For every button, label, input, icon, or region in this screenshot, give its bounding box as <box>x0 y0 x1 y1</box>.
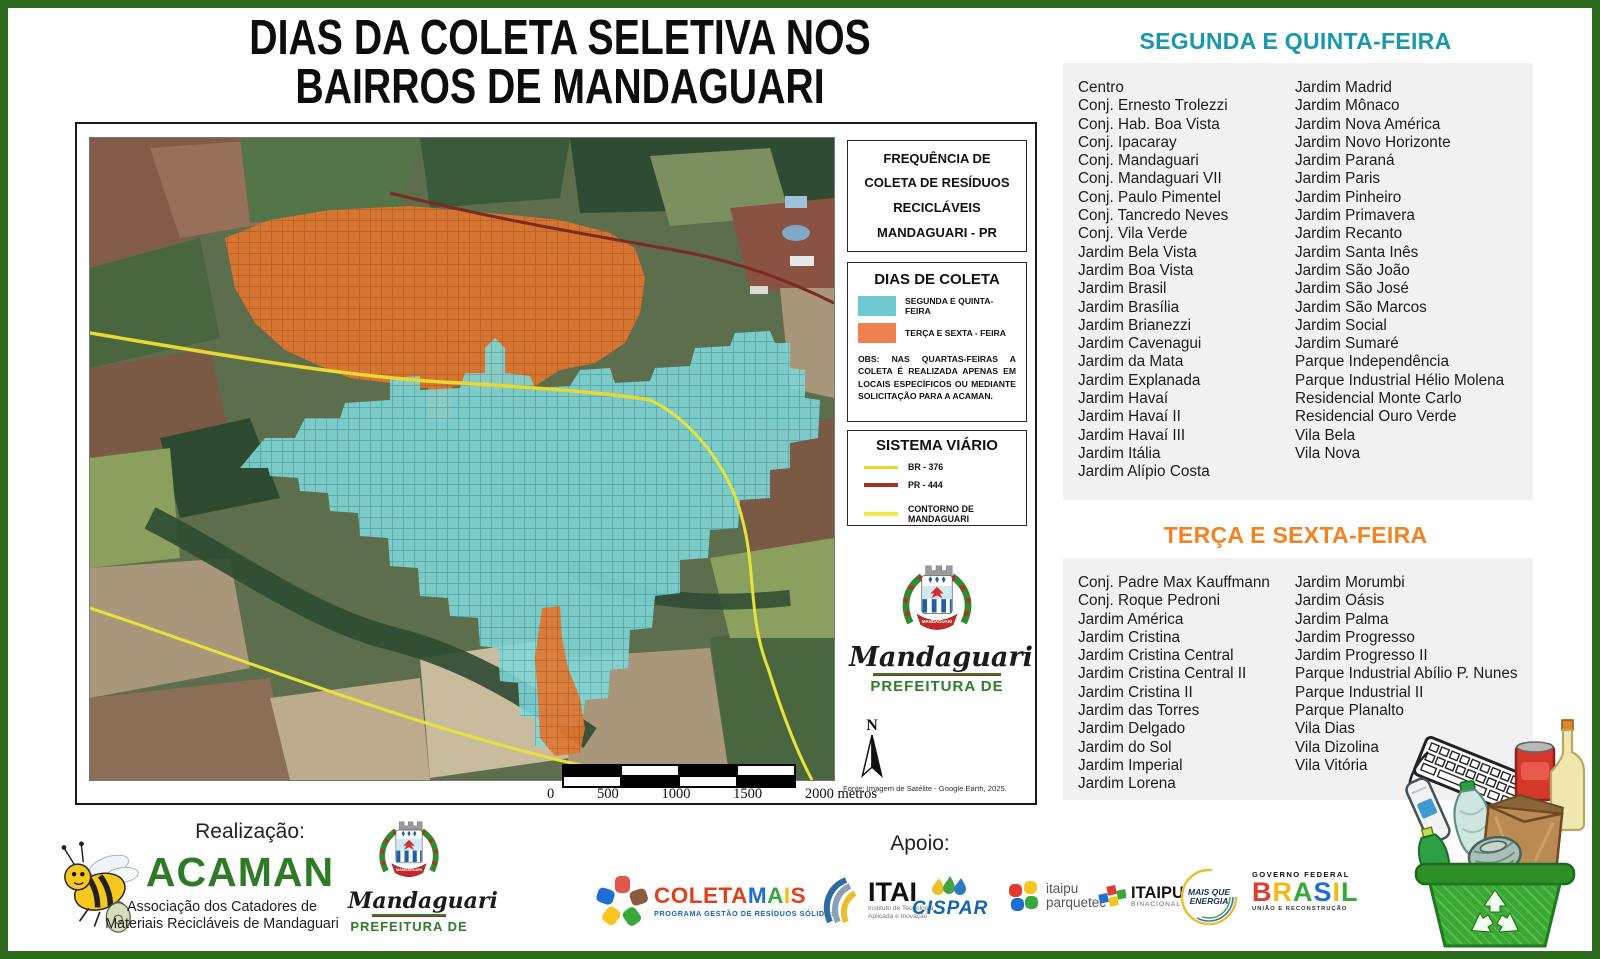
list-item: Conj. Mandaguari VII <box>1078 170 1228 188</box>
letter: A <box>1293 877 1314 907</box>
energia-wordmark: MAIS QUE ENERGIA <box>1178 866 1240 928</box>
mandaguari-crest-icon <box>368 820 450 886</box>
list-item: Conj. Padre Max Kauffmann <box>1078 574 1270 592</box>
letter: I <box>1333 877 1342 907</box>
mandaguari-city-logo: Mandaguari PREFEITURA DE <box>849 564 1025 695</box>
monday-list-title: SEGUNDA E QUINTA-FEIRA <box>1058 28 1533 55</box>
letter: A <box>731 883 748 908</box>
cispar-logo: CISPAR <box>912 876 988 920</box>
pr444-line-swatch <box>864 483 898 487</box>
legend-label: TERÇA E SEXTA - FEIRA <box>905 328 1006 338</box>
letter: T <box>719 883 732 908</box>
list-item: Vila Bela <box>1295 427 1504 445</box>
list-item: Jardim Alípio Costa <box>1078 463 1228 481</box>
list-item: Jardim Progresso II <box>1295 647 1518 665</box>
acaman-desc-line2: Materiais Recicláveis de Mandaguari <box>92 916 352 933</box>
list-item: Jardim Brasília <box>1078 299 1228 317</box>
north-letter: N <box>866 717 878 734</box>
cispar-drops-icon <box>927 876 973 898</box>
list-item: Jardim Havaí <box>1078 390 1228 408</box>
list-item: Jardim Havaí II <box>1078 408 1228 426</box>
list-item: Jardim Delgado <box>1078 720 1270 738</box>
list-item: Jardim São José <box>1295 280 1504 298</box>
list-item: Jardim Boa Vista <box>1078 262 1228 280</box>
letter: B <box>1252 877 1273 907</box>
list-item: 0 <box>547 786 554 803</box>
list-item: Parque Industrial Hélio Molena <box>1295 372 1504 390</box>
list-item: Jardim Primavera <box>1295 207 1504 225</box>
list-item: Jardim Lorena <box>1078 775 1270 793</box>
list-item: Jardim Havaí III <box>1078 427 1228 445</box>
energia-line2: ENERGIA <box>1190 897 1229 907</box>
map-scale-bar <box>562 764 796 788</box>
tuesday-list-col1: Conj. Padre Max KauffmannConj. Roque Ped… <box>1078 574 1270 794</box>
list-item: Jardim Novo Horizonte <box>1295 134 1504 152</box>
page-title: DIAS DA COLETA SELETIVA NOS BAIRROS DE M… <box>80 14 1040 112</box>
road-legend-item: BR - 376 <box>864 462 1016 472</box>
list-item: Conj. Vila Verde <box>1078 225 1228 243</box>
list-item: Jardim Cristina Central II <box>1078 665 1270 683</box>
list-item: Conj. Ipacaray <box>1078 134 1228 152</box>
mais-que-energia-logo: MAIS QUE ENERGIA <box>1178 866 1240 928</box>
itaipu-parquetec-logo: itaipu parquetec <box>1008 880 1106 912</box>
acaman-description: Associação dos Catadores de Materiais Re… <box>92 899 352 933</box>
list-item: Jardim Brasil <box>1078 280 1228 298</box>
list-item: Conj. Paulo Pimentel <box>1078 189 1228 207</box>
list-item: Jardim Cristina II <box>1078 684 1270 702</box>
itaipu-subtitle: BINACIONAL <box>1131 901 1184 908</box>
list-item: Jardim Progresso <box>1295 629 1518 647</box>
letter: L <box>1341 877 1359 907</box>
list-item: Jardim Santa Inês <box>1295 244 1504 262</box>
list-item: Jardim São João <box>1295 262 1504 280</box>
list-item: Jardim Paris <box>1295 170 1504 188</box>
list-item: Jardim Mônaco <box>1295 97 1504 115</box>
parquetec-icon <box>1008 880 1040 912</box>
map-figure: 0500100015002000 metros FREQUÊNCIA DE CO… <box>75 122 1037 805</box>
legend-label: SEGUNDA E QUINTA-FEIRA <box>905 296 1016 316</box>
cispar-wordmark: CISPAR <box>912 898 988 920</box>
city-logo-name: Mandaguari <box>849 645 1025 671</box>
road-label: BR - 376 <box>908 462 943 472</box>
letter: I <box>784 883 791 908</box>
list-item: Jardim das Torres <box>1078 702 1270 720</box>
list-item: Jardim Oásis <box>1295 592 1518 610</box>
itaipu-binacional-logo: ITAIPU BINACIONAL <box>1098 884 1184 910</box>
title-line-1: DIAS DA COLETA SELETIVA NOS <box>176 14 944 63</box>
list-item: Jardim Imperial <box>1078 757 1270 775</box>
list-item: Jardim Explanada <box>1078 372 1228 390</box>
list-item: Centro <box>1078 79 1228 97</box>
itaipu-wordmark: ITAIPU <box>1131 886 1184 901</box>
list-item: 500 <box>597 786 619 803</box>
coletamais-subtitle: PROGRAMA GESTÃO DE RESÍDUOS SÓLIDOS <box>654 909 836 918</box>
list-item: Jardim Morumbi <box>1295 574 1518 592</box>
list-item: Jardim Brianezzi <box>1078 317 1228 335</box>
acaman-logo-name: ACAMAN <box>135 849 345 896</box>
legend-item-monday: SEGUNDA E QUINTA-FEIRA <box>858 296 1016 316</box>
list-item: Jardim Palma <box>1295 611 1518 629</box>
recycle-bin-illustration <box>1398 692 1593 955</box>
north-arrow-icon: N <box>855 716 889 780</box>
list-item: Parque Industrial Abílio P. Nunes <box>1295 665 1518 683</box>
legend-item-tuesday: TERÇA E SEXTA - FEIRA <box>858 323 1016 343</box>
city-logo-name: Mandaguari <box>348 891 470 912</box>
monday-list-box: CentroConj. Ernesto TrolezziConj. Hab. B… <box>1063 63 1533 500</box>
legend-title: DIAS DE COLETA <box>858 271 1016 288</box>
letter: S <box>1314 877 1333 907</box>
frequency-line: RECICLÁVEIS <box>848 196 1026 221</box>
map-scale-labels: 0500100015002000 metros <box>547 786 877 803</box>
city-logo-divider <box>372 914 446 917</box>
coletamais-wordmark: COLETAMAIS <box>654 885 836 907</box>
letter: O <box>671 883 689 908</box>
letter: L <box>689 883 703 908</box>
br376-line-swatch <box>864 466 898 469</box>
brasil-wordmark: BRASIL <box>1252 879 1359 905</box>
road-legend-box: SISTEMA VIÁRIO BR - 376 PR - 444 CONTORN… <box>847 430 1027 526</box>
road-legend-item: CONTORNO DE MANDAGUARI <box>864 504 1016 524</box>
list-item: Residencial Monte Carlo <box>1295 390 1504 408</box>
list-item: Residencial Ouro Verde <box>1295 408 1504 426</box>
contorno-line-swatch <box>864 512 898 516</box>
poster: MANDAGUARI DIAS DA COLETA SELETIVA NOS B… <box>0 0 1600 959</box>
coletamais-hands-icon <box>596 874 648 928</box>
list-item: Parque Independência <box>1295 353 1504 371</box>
list-item: Jardim Bela Vista <box>1078 244 1228 262</box>
list-item: Vila Nova <box>1295 445 1504 463</box>
list-item: Conj. Hab. Boa Vista <box>1078 116 1228 134</box>
north-arrow: N <box>855 716 889 785</box>
coletamais-logo: COLETAMAIS PROGRAMA GESTÃO DE RESÍDUOS S… <box>596 874 836 928</box>
list-item: Conj. Roque Pedroni <box>1078 592 1270 610</box>
orange-swatch <box>858 323 896 343</box>
list-item: Conj. Mandaguari <box>1078 152 1228 170</box>
itaipu-icon <box>1098 884 1126 910</box>
list-item: Jardim Itália <box>1078 445 1228 463</box>
list-item: Jardim Paraná <box>1295 152 1504 170</box>
cyan-swatch <box>858 296 896 316</box>
monday-list-col1: CentroConj. Ernesto TrolezziConj. Hab. B… <box>1078 79 1228 482</box>
road-label: CONTORNO DE MANDAGUARI <box>908 504 1016 524</box>
list-item: 1000 <box>661 786 690 803</box>
monday-list-col2: Jardim MadridJardim MônacoJardim Nova Am… <box>1295 79 1504 463</box>
frequency-line: FREQUÊNCIA DE <box>848 147 1026 172</box>
list-item: Jardim Pinheiro <box>1295 189 1504 207</box>
acaman-desc-line1: Associação dos Catadores de <box>92 899 352 916</box>
legend-obs-note: OBS: NAS QUARTAS-FEIRAS A COLETA É REALI… <box>858 353 1016 403</box>
letter: M <box>748 883 767 908</box>
list-item: Jardim Nova América <box>1295 116 1504 134</box>
list-item: Conj. Tancredo Neves <box>1078 207 1228 225</box>
list-item: Jardim da Mata <box>1078 353 1228 371</box>
governo-federal-logo: GOVERNO FEDERAL BRASIL UNIÃO E RECONSTRU… <box>1252 870 1359 912</box>
list-item: 1500 <box>733 786 762 803</box>
governo-sub-label: UNIÃO E RECONSTRUÇÃO <box>1252 906 1359 912</box>
road-legend-item: PR - 444 <box>864 480 1016 490</box>
city-logo-sub: PREFEITURA DE <box>849 678 1025 695</box>
frequency-line: COLETA DE RESÍDUOS <box>848 171 1026 196</box>
list-item: Jardim do Sol <box>1078 739 1270 757</box>
letter: S <box>791 883 807 908</box>
list-item: Jardim Cristina Central <box>1078 647 1270 665</box>
road-legend-title: SISTEMA VIÁRIO <box>858 437 1016 454</box>
list-item: Conj. Ernesto Trolezzi <box>1078 97 1228 115</box>
list-item: Jardim Recanto <box>1295 225 1504 243</box>
list-item: Jardim Sumaré <box>1295 335 1504 353</box>
apoio-label: Apoio: <box>860 832 980 856</box>
list-item: Jardim Cristina <box>1078 629 1270 647</box>
mandaguari-crest-icon <box>889 564 985 640</box>
letter: E <box>703 883 719 908</box>
frequency-title-box: FREQUÊNCIA DE COLETA DE RESÍDUOS RECICLÁ… <box>847 140 1027 252</box>
letter: C <box>654 883 671 908</box>
list-item: Jardim América <box>1078 611 1270 629</box>
mandaguari-footer-logo: Mandaguari PREFEITURA DE <box>348 820 470 934</box>
city-logo-divider <box>873 673 1001 676</box>
map-source-note: Fonte: Imagem de Satélite - Google Earth… <box>843 784 1033 793</box>
letter: R <box>1273 877 1294 907</box>
letter: A <box>767 883 784 908</box>
tuesday-list-title: TERÇA E SEXTA-FEIRA <box>1058 522 1533 549</box>
list-item: Jardim Social <box>1295 317 1504 335</box>
road-label: PR - 444 <box>908 480 943 490</box>
list-item: Jardim São Marcos <box>1295 299 1504 317</box>
legend-box: DIAS DE COLETA SEGUNDA E QUINTA-FEIRA TE… <box>847 262 1027 422</box>
satellite-map[interactable] <box>89 137 835 781</box>
list-item: Jardim Cavenagui <box>1078 335 1228 353</box>
frequency-line: MANDAGUARI - PR <box>848 221 1026 246</box>
city-logo-sub: PREFEITURA DE <box>348 919 470 934</box>
itai-icon <box>822 876 862 924</box>
title-line-2: BAIRROS DE MANDAGUARI <box>176 63 944 112</box>
list-item: Jardim Madrid <box>1295 79 1504 97</box>
